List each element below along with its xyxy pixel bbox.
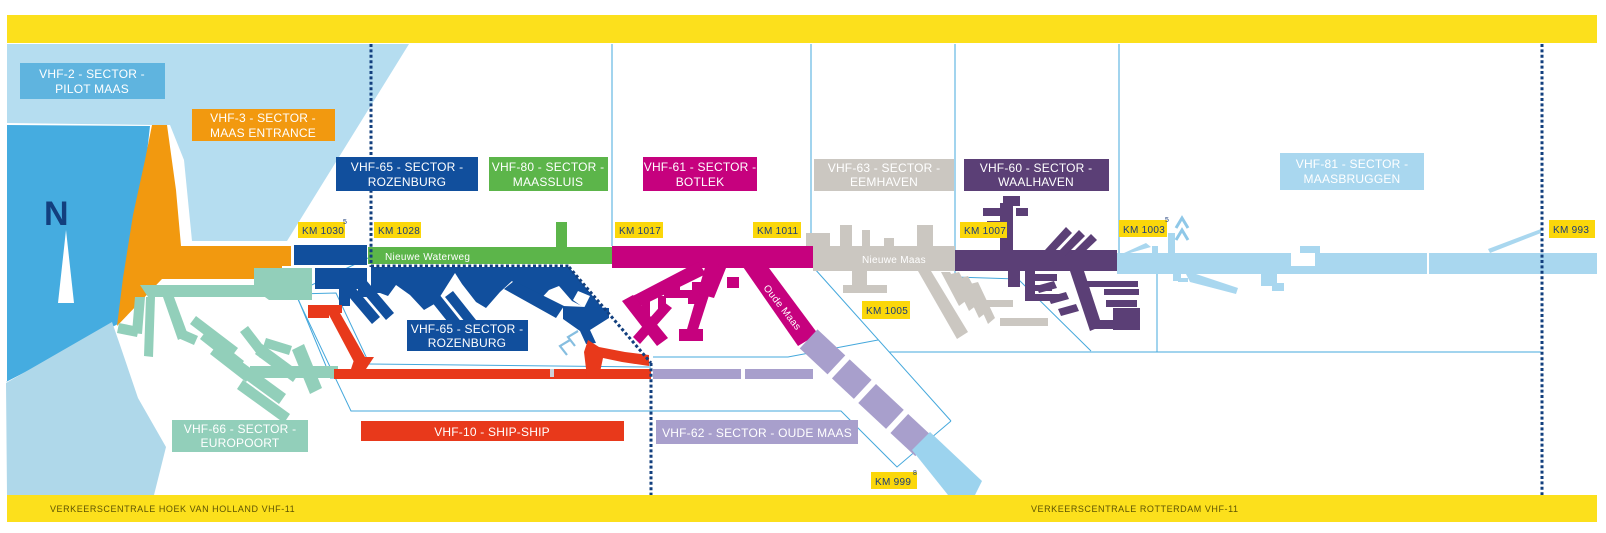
svg-text:VHF-61 - SECTOR -: VHF-61 - SECTOR -: [644, 160, 757, 174]
svg-text:KM 1028: KM 1028: [378, 226, 420, 237]
svg-text:Nieuwe Waterweg: Nieuwe Waterweg: [385, 252, 470, 263]
svg-text:WAALHAVEN: WAALHAVEN: [998, 175, 1074, 189]
svg-text:VHF-60 - SECTOR -: VHF-60 - SECTOR -: [980, 161, 1093, 175]
svg-text:MAASBRUGGEN: MAASBRUGGEN: [1304, 172, 1401, 186]
svg-text:VHF-2 - SECTOR -: VHF-2 - SECTOR -: [39, 67, 145, 81]
svg-text:N: N: [44, 195, 69, 233]
svg-text:ROZENBURG: ROZENBURG: [428, 336, 506, 350]
svg-text:KM 1011: KM 1011: [757, 226, 799, 237]
svg-text:MAASSLUIS: MAASSLUIS: [513, 175, 584, 189]
svg-text:5: 5: [1165, 217, 1169, 224]
svg-text:KM 1003: KM 1003: [1123, 225, 1165, 236]
svg-text:5: 5: [343, 219, 347, 226]
svg-text:8: 8: [913, 470, 917, 477]
svg-text:VERKEERSCENTRALE ROTTERDAM VHF: VERKEERSCENTRALE ROTTERDAM VHF-11: [1031, 504, 1239, 514]
svg-text:KM 1007: KM 1007: [964, 226, 1006, 237]
svg-text:PILOT MAAS: PILOT MAAS: [55, 82, 129, 96]
svg-text:KM 1030: KM 1030: [302, 226, 344, 237]
svg-text:Nieuwe Maas: Nieuwe Maas: [862, 255, 926, 266]
svg-text:BOTLEK: BOTLEK: [676, 175, 725, 189]
svg-text:KM 1017: KM 1017: [619, 226, 661, 237]
svg-text:VHF-65 - SECTOR -: VHF-65 - SECTOR -: [351, 160, 464, 174]
svg-text:VHF-81 - SECTOR -: VHF-81 - SECTOR -: [1296, 157, 1409, 171]
svg-text:EUROPOORT: EUROPOORT: [201, 436, 280, 450]
svg-text:MAAS ENTRANCE: MAAS ENTRANCE: [210, 126, 316, 140]
svg-text:VHF-66 - SECTOR -: VHF-66 - SECTOR -: [184, 422, 297, 436]
svg-text:VHF-63 - SECTOR -: VHF-63 - SECTOR -: [828, 161, 941, 175]
svg-text:VERKEERSCENTRALE HOEK VAN HOLL: VERKEERSCENTRALE HOEK VAN HOLLAND VHF-11: [50, 504, 295, 514]
svg-text:VHF-62 - SECTOR - OUDE MAAS: VHF-62 - SECTOR - OUDE MAAS: [662, 426, 852, 440]
svg-text:VHF-3 - SECTOR -: VHF-3 - SECTOR -: [210, 111, 316, 125]
svg-text:KM 1005: KM 1005: [866, 306, 908, 317]
svg-text:VHF-80 - SECTOR -: VHF-80 - SECTOR -: [492, 160, 605, 174]
svg-text:KM 993: KM 993: [1553, 225, 1589, 236]
svg-text:EEMHAVEN: EEMHAVEN: [850, 175, 918, 189]
svg-text:ROZENBURG: ROZENBURG: [368, 175, 446, 189]
svg-text:VHF-65 - SECTOR -: VHF-65 - SECTOR -: [411, 322, 524, 336]
svg-text:KM 999: KM 999: [875, 477, 911, 488]
svg-text:VHF-10 - SHIP-SHIP: VHF-10 - SHIP-SHIP: [434, 425, 550, 439]
